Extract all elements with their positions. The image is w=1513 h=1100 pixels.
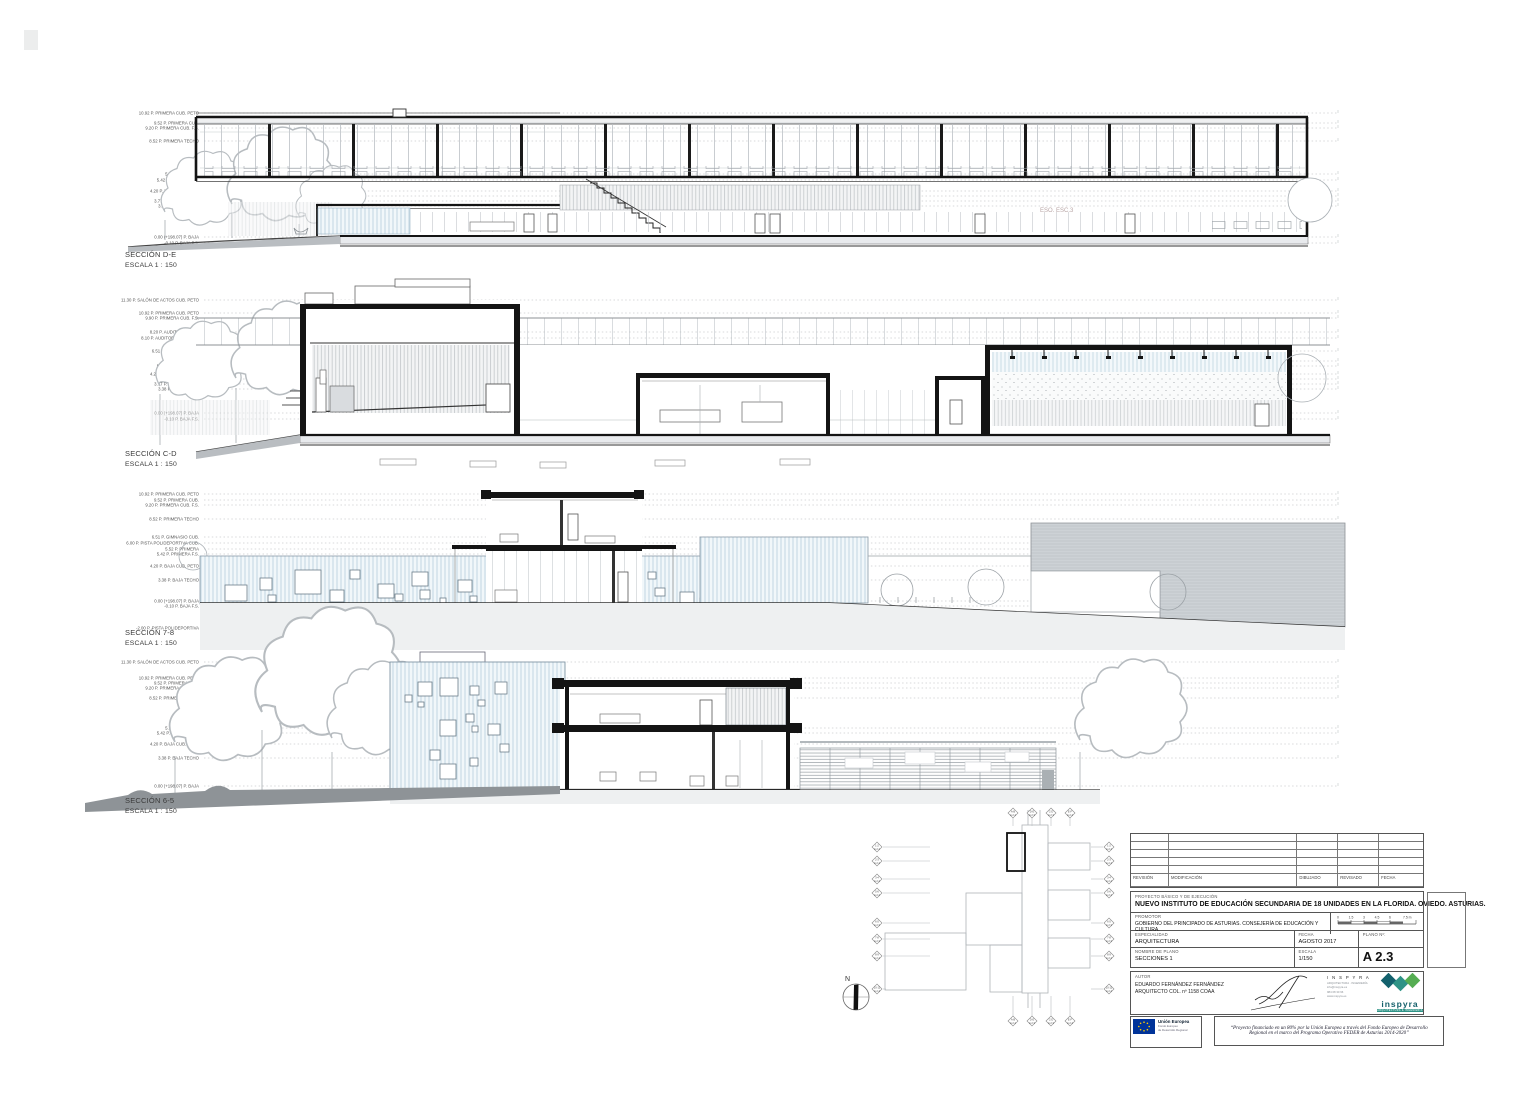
revision-table: REVISIÓN MODIFICACIÓN DIBUJADO REVISADO … <box>1130 833 1424 888</box>
scalebar-tick: 3 <box>1363 916 1365 920</box>
section-marker-id: D-E <box>1030 1017 1035 1021</box>
level-label: 9.20 P. PRIMERA CUB. F.S. <box>145 503 199 508</box>
author-block: AUTOR EDUARDO FERNÁNDEZ FERNÁNDEZ ARQUIT… <box>1130 971 1424 1015</box>
inspyra-web: www.inspyra.es <box>1327 994 1370 998</box>
section-scale-text: ESCALA 1 : 150 <box>125 807 177 817</box>
section-marker-id: 8-9 <box>875 952 879 956</box>
signature <box>1249 974 1319 1014</box>
section-marker-id: A-B <box>1011 1017 1016 1021</box>
section-marker-sheet: A 2.4 <box>874 847 880 851</box>
escala-label: ESCALA <box>1299 949 1354 954</box>
section-title-text: SECCIÓN C-D <box>125 449 177 460</box>
section-title-text: SECCIÓN 6-5 <box>125 796 177 807</box>
section-marker-sheet: A 2.4 <box>1010 1021 1016 1025</box>
section-marker-sheet: A 2.4 <box>1010 813 1016 817</box>
title-block: REVISIÓN MODIFICACIÓN DIBUJADO REVISADO … <box>1130 833 1424 1015</box>
section-marker-id: D-E <box>1030 809 1035 813</box>
level-label: 10.92 P. PRIMERA CUB. PETO <box>139 492 200 497</box>
north-label: N <box>845 976 850 983</box>
level-label: 11.30 P. SALÓN DE ACTOS CUB. PETO <box>121 660 200 665</box>
drawing-sheet: 10.92 P. PRIMERA CUB. PETO9.52 P. PRIMER… <box>0 0 1513 1100</box>
corner-mark <box>24 30 38 50</box>
level-label: 3.38 P. BAJA TECHO <box>158 756 200 761</box>
revision-header: FECHA <box>1379 874 1423 887</box>
section-marker-id: 7-8 <box>1107 935 1111 939</box>
section-marker-id: 5-6 <box>875 889 879 893</box>
section-marker-sheet: A 2.4 <box>1106 847 1112 851</box>
level-label: 0.00 (+198.07) P. BAJA <box>154 784 199 789</box>
eu-flag-box: Unión Europea Fondo Europeo de Desarroll… <box>1130 1016 1202 1048</box>
section-marker-sheet: A 2.4 <box>874 893 880 897</box>
section-marker-sheet: A 2.4 <box>1106 879 1112 883</box>
section-marker-sheet: A 2.3 <box>1106 923 1112 927</box>
section-marker-sheet: A 2.4 <box>874 861 880 865</box>
section-marker-sheet: A 2.3 <box>1106 939 1112 943</box>
section-marker-sheet: A 2.4 <box>1067 1021 1073 1025</box>
level-label: 8.52 P. PRIMERA TECHO <box>149 517 199 522</box>
section-marker-sheet: A 2.4 <box>1106 956 1112 960</box>
revision-header: REVISIÓN <box>1131 874 1169 887</box>
scalebar-tick: 1.5 <box>1348 916 1353 920</box>
especialidad-value: ARQUITECTURA <box>1135 939 1290 945</box>
section-marker-id: E-F <box>1068 1017 1073 1021</box>
especialidad-label: ESPECIALIDAD <box>1135 932 1290 937</box>
level-label: 4.20 P. BAJA CUB. PETO <box>150 564 200 569</box>
section-marker-id: 3-4 <box>1107 875 1111 879</box>
level-label: 9.90 P. PRIMERA CUB. F.S. <box>145 316 199 321</box>
section-marker-sheet: A 2.3 <box>874 939 880 943</box>
eso-room-label: ESO. ESC.3 <box>1040 208 1074 214</box>
revision-header: MODIFICACIÓN <box>1169 874 1297 887</box>
level-label: 0.00 (+198.07) P. BAJA <box>154 235 199 240</box>
section-marker-sheet: A 2.4 <box>1106 989 1112 993</box>
section-scale-text: ESCALA 1 : 150 <box>125 261 177 271</box>
section-marker-id: 5-6 <box>1107 889 1111 893</box>
section-DE-drawing: ESO. ESC.3 <box>128 109 1332 252</box>
keyplan-diagram: A-BA 2.4D-EA 2.3C-DA 2.3E-FA 2.4A-BA 2.4… <box>843 808 1114 1026</box>
project-title: NUEVO INSTITUTO DE EDUCACIÓN SECUNDARIA … <box>1135 901 1419 908</box>
section-marker-sheet: A 2.3 <box>1029 1021 1035 1025</box>
section-marker-id: A-B <box>1011 809 1016 813</box>
section-marker-id: C-D <box>1049 1017 1054 1021</box>
inspyra-logo-diamonds <box>1377 973 1423 995</box>
section-DE-title: SECCIÓN D-E ESCALA 1 : 150 <box>125 250 177 271</box>
project-type-label: PROYECTO BÁSICO Y DE EJECUCIÓN <box>1135 894 1419 899</box>
inspyra-wordmark: inspyra <box>1377 1000 1423 1009</box>
section-marker-id: 2-3 <box>1107 857 1111 861</box>
eu-quote: “Proyecto financiado en un 80% por la Un… <box>1214 1016 1444 1046</box>
section-marker-id: 7-8 <box>875 935 879 939</box>
revision-header: DIBUJADO <box>1297 874 1338 887</box>
level-label: 3.38 P. BAJA TECHO <box>158 578 200 583</box>
inspyra-strip: ARQUITECTURA & INGENIERÍA <box>1377 1009 1423 1012</box>
section-CD-drawing <box>150 279 1330 468</box>
sheet-number: A 2.3 <box>1363 949 1419 964</box>
section-marker-sheet: A 2.4 <box>874 879 880 883</box>
section-65-title: SECCIÓN 6-5 ESCALA 1 : 150 <box>125 796 177 817</box>
fecha-value: AGOSTO 2017 <box>1299 939 1354 945</box>
north-arrow: N <box>843 976 869 1010</box>
level-label: 5.42 P. PRIMERA F.S. <box>157 552 199 557</box>
section-marker-id: 1-2 <box>1107 843 1111 847</box>
eu-flag <box>1133 1019 1155 1034</box>
section-marker-id: C-D <box>1049 809 1054 813</box>
section-title-text: SECCIÓN 7-8 <box>125 628 177 639</box>
section-marker-sheet: A 2.3 <box>1048 1021 1054 1025</box>
section-marker-id: 6-5 <box>875 919 879 923</box>
level-label: -0.10 P. BAJA F.S. <box>164 604 199 609</box>
section-marker-sheet: A 2.4 <box>874 989 880 993</box>
section-marker-id: 3-4 <box>875 875 879 879</box>
section-marker-sheet: A 2.3 <box>1048 813 1054 817</box>
inspyra-logo: inspyra ARQUITECTURA & INGENIERÍA <box>1377 973 1423 1012</box>
scalebar-tick: 7.5 m <box>1403 916 1412 920</box>
titleblock-side-box <box>1427 892 1466 968</box>
revision-header: REVISADO <box>1338 874 1379 887</box>
section-marker-id: 8-9 <box>1107 952 1111 956</box>
nombre-plano-value: SECCIONES 1 <box>1135 956 1290 962</box>
section-marker-sheet: A 2.3 <box>874 923 880 927</box>
level-label: 9.20 P. PRIMERA CUB. F.S. <box>145 126 199 131</box>
section-marker-id: 6-5 <box>1107 919 1111 923</box>
promotor-label: PROMOTOR <box>1135 914 1326 919</box>
keyplan-section-markers: A-BA 2.4D-EA 2.3C-DA 2.3E-FA 2.4A-BA 2.4… <box>872 808 1114 1026</box>
scalebar-tick: 6 <box>1389 916 1391 920</box>
project-info-block: PROYECTO BÁSICO Y DE EJECUCIÓN NUEVO INS… <box>1130 891 1424 968</box>
section-marker-sheet: A 2.4 <box>1106 893 1112 897</box>
section-marker-sheet: A 2.3 <box>1029 813 1035 817</box>
section-marker-id: 2-3 <box>875 857 879 861</box>
level-label: 11.30 P. SALÓN DE ACTOS CUB. PETO <box>121 298 200 303</box>
section-marker-id: E-F <box>1068 809 1073 813</box>
graphic-scale-bar: 01.534.567.5 m <box>1335 914 1421 928</box>
section-CD-title: SECCIÓN C-D ESCALA 1 : 150 <box>125 449 177 470</box>
plano-no-label: PLANO Nº: <box>1363 932 1419 937</box>
section-marker-sheet: A 2.4 <box>874 956 880 960</box>
section-title-text: SECCIÓN D-E <box>125 250 177 261</box>
section-marker-id: 10-11 <box>874 985 881 989</box>
fecha-label: FECHA <box>1299 932 1354 937</box>
section-scale-text: ESCALA 1 : 150 <box>125 639 177 649</box>
section-marker-sheet: A 2.4 <box>1106 861 1112 865</box>
section-marker-sheet: A 2.4 <box>1067 813 1073 817</box>
section-78-title: SECCIÓN 7-8 ESCALA 1 : 150 <box>125 628 177 649</box>
section-marker-id: 10-11 <box>1106 985 1113 989</box>
level-label: 10.92 P. PRIMERA CUB. PETO <box>139 111 200 116</box>
scalebar-tick: 4.5 <box>1374 916 1379 920</box>
section-marker-id: 1-2 <box>875 843 879 847</box>
level-label: 6.51 P. GIMNASIO CUB. <box>152 535 199 540</box>
inspyra-info: I N S P Y R A ARQUITECTURA · INGENIERÍA … <box>1327 975 1370 998</box>
section-scale-text: ESCALA 1 : 150 <box>125 460 177 470</box>
escala-value: 1/150 <box>1299 956 1354 962</box>
nombre-plano-label: NOMBRE DE PLANO <box>1135 949 1290 954</box>
level-label: 8.52 P. PRIMERA TECHO <box>149 139 199 144</box>
scalebar-tick: 0 <box>1337 916 1339 920</box>
